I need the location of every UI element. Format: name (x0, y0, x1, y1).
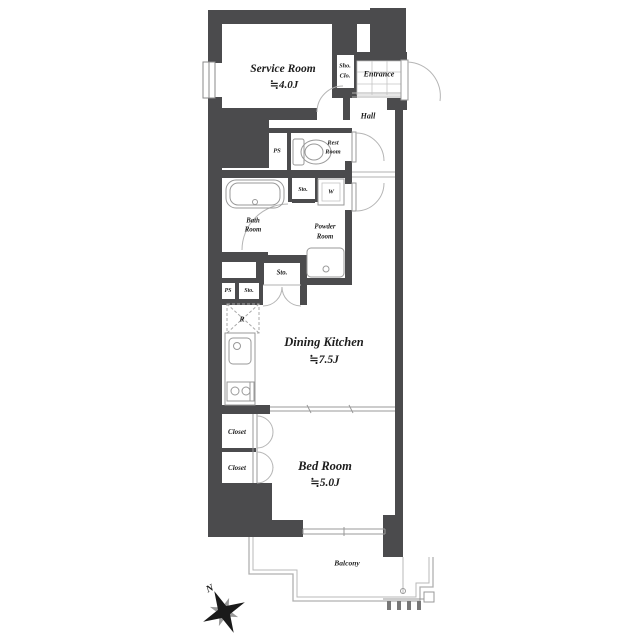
powder-room-door (352, 183, 384, 211)
dining-kitchen-label: Dining Kitchen (283, 335, 364, 349)
rest-room-label-2: Room (324, 149, 340, 156)
north-label: N (203, 582, 216, 596)
powder-room-label-2: Room (316, 234, 334, 241)
closet-upper-label: Closet (228, 428, 247, 436)
storage-double-door-arcs (263, 285, 301, 306)
rest-room-door (352, 132, 384, 162)
storage-top-label: Sto. (298, 187, 308, 193)
dining-kitchen-size: ≒7.5J (309, 354, 340, 366)
bed-room-label: Bed Room (297, 459, 352, 473)
hall-label: Hall (360, 112, 376, 121)
closet-lower-label: Closet (228, 464, 247, 472)
pipe-space-upper-label: PS (273, 148, 281, 155)
balcony-window (303, 527, 385, 536)
bath-room-label-2: Room (244, 227, 262, 234)
hall-floor-line (352, 172, 395, 177)
entrance-door (401, 60, 440, 101)
powder-room-label-1: Powder (314, 224, 335, 231)
bath-room-label-1: Bath (245, 218, 260, 225)
floor-plan-page: N Service Room ≒4.0J Sho. Clo. Entrance … (0, 0, 640, 640)
shoe-closet-label-1: Sho. (339, 63, 351, 70)
entrance-label: Entrance (363, 70, 395, 79)
pipe-space-lower-label: PS (224, 288, 232, 294)
balcony-railing (249, 537, 433, 601)
service-room-window (203, 62, 215, 98)
compass-rose (193, 581, 254, 640)
rest-room-label-1: Rest (326, 140, 338, 147)
bathtub-icon (226, 180, 284, 208)
storage-mid-label: Sto. (277, 270, 288, 277)
balcony-label: Balcony (333, 559, 360, 568)
service-room-label: Service Room (250, 63, 316, 75)
stove-icon (227, 382, 254, 401)
washbasin-icon (307, 248, 344, 277)
refrigerator-label: R (238, 315, 244, 324)
shoe-closet-label-2: Clo. (340, 73, 351, 80)
bed-room-size: ≒5.0J (310, 477, 341, 489)
floor-plan: N Service Room ≒4.0J Sho. Clo. Entrance … (0, 0, 640, 640)
washer-label: W (328, 189, 335, 196)
kitchen-sink-icon (229, 338, 251, 364)
walls (208, 8, 407, 557)
storage-lower-label: Sto. (244, 288, 254, 294)
sliding-partition (270, 405, 395, 413)
balcony-drain-icon (383, 592, 434, 610)
service-room-size: ≒4.0J (270, 79, 299, 91)
